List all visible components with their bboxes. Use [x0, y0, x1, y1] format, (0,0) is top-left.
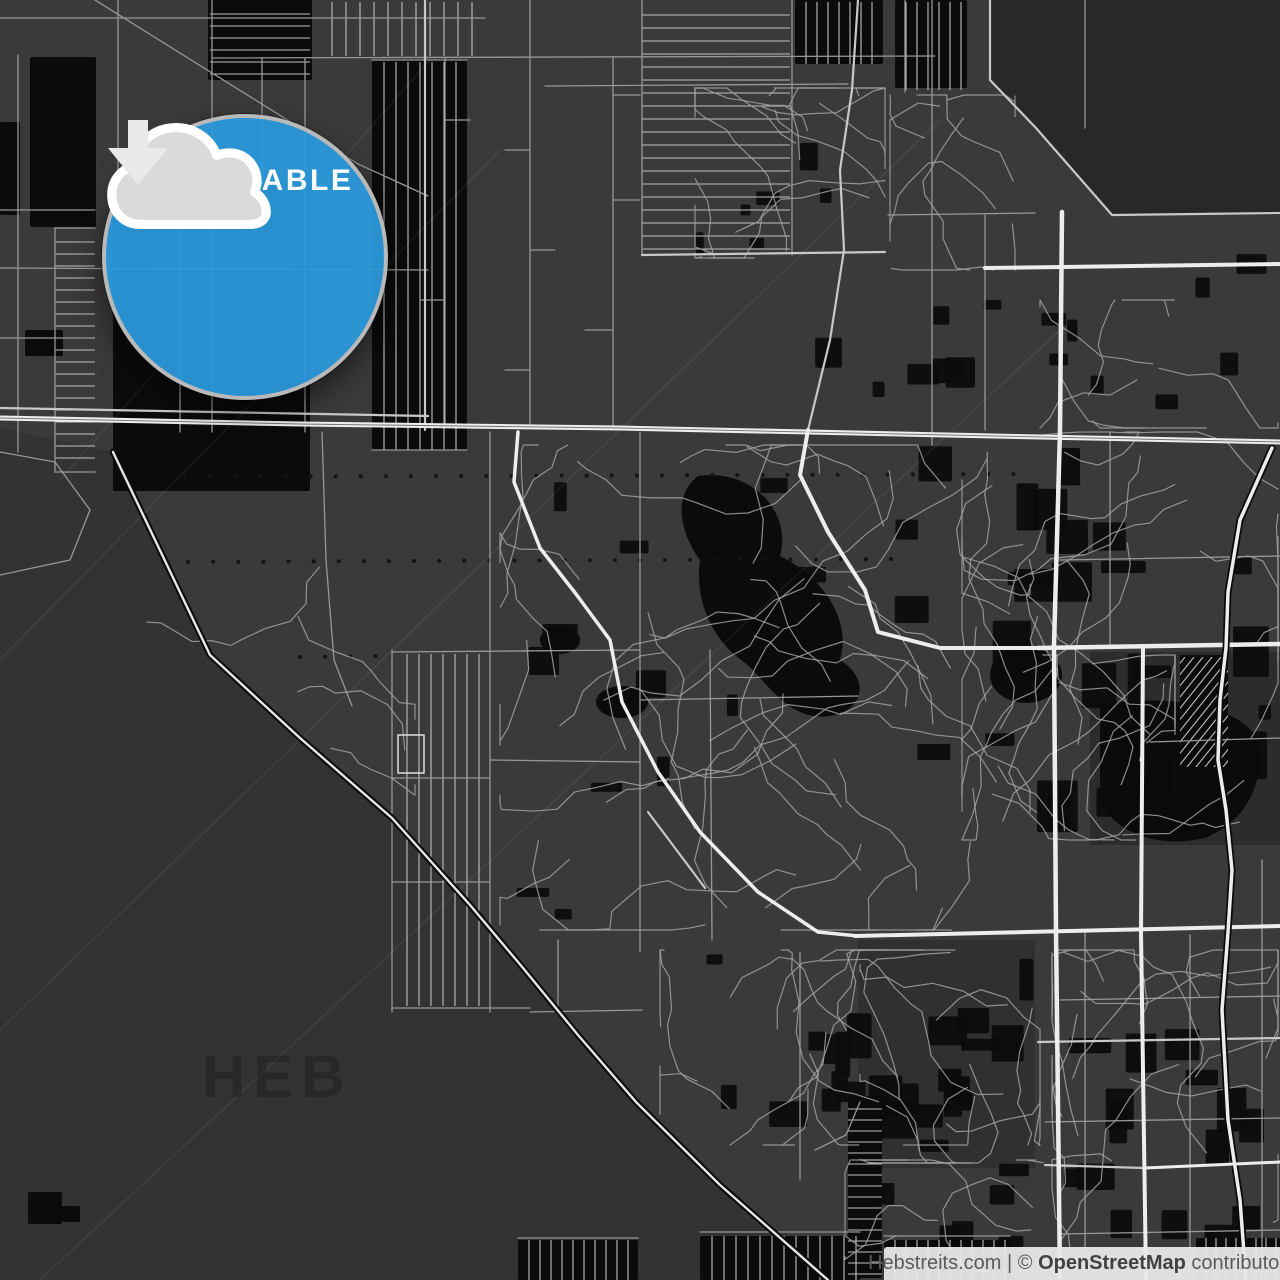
attribution-prefix: Hebstreits.com | © — [868, 1252, 1038, 1275]
attribution-suffix: contributors — [1186, 1252, 1280, 1275]
attribution-bar: Hebstreits.com | © OpenStreetMap contrib… — [884, 1247, 1280, 1280]
map-preview: LICENSABLE HEB Hebstreits.com | © OpenSt… — [0, 0, 1280, 1280]
attribution-osm: OpenStreetMap — [1038, 1252, 1186, 1275]
licensable-badge[interactable]: LICENSABLE — [102, 114, 388, 400]
brand-watermark: HEB — [202, 1042, 353, 1111]
download-arrow-icon — [106, 120, 170, 186]
